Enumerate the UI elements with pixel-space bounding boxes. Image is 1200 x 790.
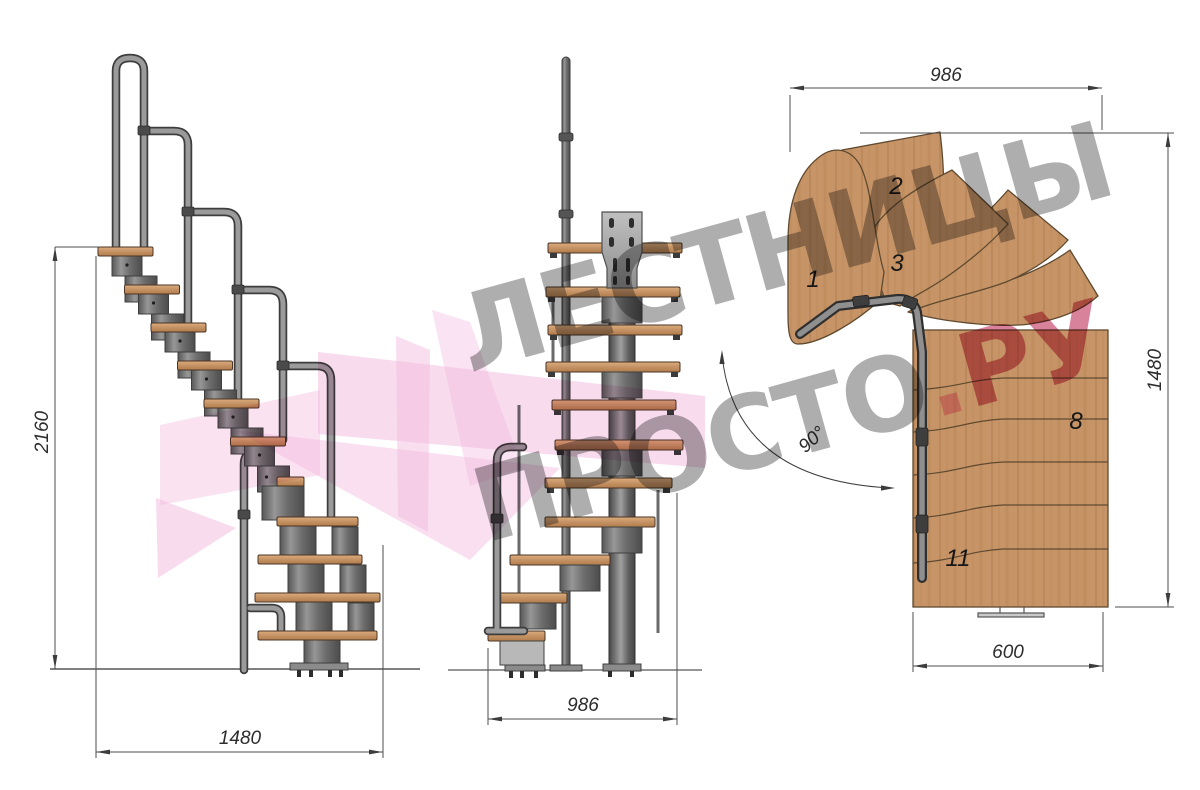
plan-straight-run xyxy=(913,330,1108,607)
dim-plan-exit-width: 600 xyxy=(992,642,1024,663)
dim-plan-width: 986 xyxy=(930,65,962,86)
plan-base-bracket xyxy=(978,607,1044,617)
plan-tread-number-11: 11 xyxy=(946,545,971,572)
tread-edge xyxy=(277,517,358,526)
side-lower-flight xyxy=(255,477,380,677)
plan-tread-number-8: 8 xyxy=(1069,408,1083,435)
top-plan-view: 1 2 3 8 11 90° xyxy=(719,65,1174,672)
staircase-drawing-canvas: 2160 1480 xyxy=(0,0,1200,790)
dim-side-height: 2160 xyxy=(32,410,53,454)
dim-side-width: 1480 xyxy=(219,728,262,749)
plan-tread-number-3: 3 xyxy=(890,250,904,277)
dim-turn-angle: 90° xyxy=(795,422,831,457)
tread-edge xyxy=(255,593,380,602)
dim-plan-length: 1480 xyxy=(1145,348,1166,391)
front-dimension xyxy=(488,493,677,725)
dim-front-width: 986 xyxy=(567,695,599,716)
technical-drawing: 2160 1480 xyxy=(0,0,1200,790)
front-mounting-plate xyxy=(602,212,642,288)
plan-tread-number-2: 2 xyxy=(888,173,902,200)
base-bolts xyxy=(297,670,343,677)
tread-edge xyxy=(258,631,377,640)
tread-edge xyxy=(258,555,362,564)
plan-angle-annotation: 90° xyxy=(719,350,895,491)
plan-tread-number-1: 1 xyxy=(806,266,819,293)
